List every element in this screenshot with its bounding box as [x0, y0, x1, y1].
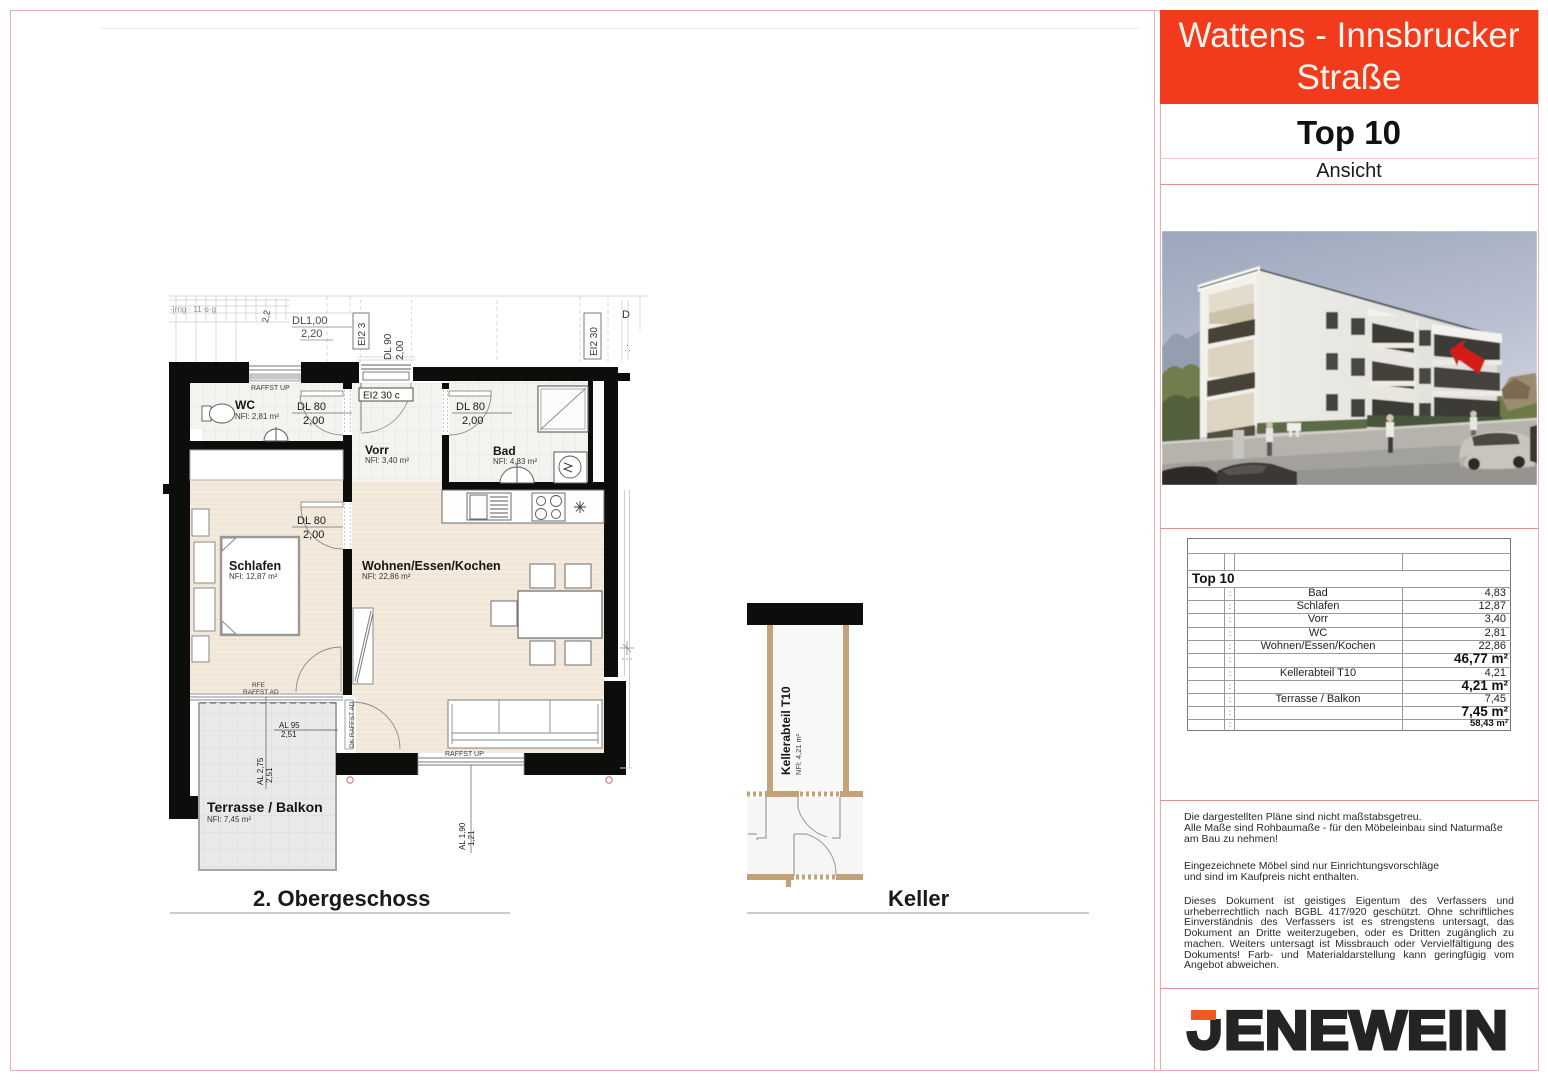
svg-text:NFl: 12,87 m²: NFl: 12,87 m²: [229, 572, 278, 581]
svg-text:DL1,00: DL1,00: [292, 315, 327, 327]
svg-text:RAFFST UP: RAFFST UP: [251, 385, 290, 392]
svg-text:: ·: : ·: [622, 344, 632, 352]
svg-text:2,00: 2,00: [303, 529, 324, 541]
svg-text:2. Obergeschoss: 2. Obergeschoss: [253, 886, 430, 911]
svg-text:DL 80: DL 80: [456, 401, 485, 413]
svg-text:1,21: 1,21: [467, 830, 476, 846]
svg-text:AL 2,75: AL 2,75: [256, 757, 265, 785]
svg-text:Terrasse / Balkon: Terrasse / Balkon: [207, 799, 323, 815]
svg-text:AL 1,90: AL 1,90: [458, 822, 467, 850]
svg-text:D: D: [622, 309, 630, 321]
svg-text:2,00: 2,00: [395, 340, 406, 360]
svg-text:2,00: 2,00: [303, 415, 324, 427]
svg-text:DL 90: DL 90: [383, 333, 394, 360]
svg-text:DK RAFFST AD: DK RAFFST AD: [349, 701, 356, 748]
svg-text:EI2 3: EI2 3: [357, 322, 368, 346]
svg-text:Bad: Bad: [493, 444, 516, 458]
svg-text:RFE: RFE: [252, 682, 266, 689]
svg-text:2,2: 2,2: [260, 309, 272, 323]
svg-text:Keller: Keller: [888, 886, 950, 911]
svg-text:Wohnen/Essen/Kochen: Wohnen/Essen/Kochen: [362, 559, 501, 573]
svg-text:DL 80: DL 80: [297, 401, 326, 413]
svg-text:NFl: 3,40 m²: NFl: 3,40 m²: [365, 456, 409, 465]
svg-text:·|rrig · 11·o·g: ·|rrig · 11·o·g: [170, 305, 216, 314]
svg-text:EI2 30 c: EI2 30 c: [363, 391, 400, 402]
svg-text:2,51: 2,51: [281, 730, 297, 739]
svg-text:Kellerabteil T10: Kellerabteil T10: [779, 686, 793, 775]
svg-text:WC: WC: [235, 398, 255, 412]
svg-text:DL 80: DL 80: [297, 515, 326, 527]
svg-text:Schlafen: Schlafen: [229, 559, 281, 573]
svg-text:2,20: 2,20: [301, 328, 322, 340]
svg-text:NFl: 2,81 m²: NFl: 2,81 m²: [235, 412, 279, 421]
svg-text:RAFFST UP: RAFFST UP: [445, 751, 484, 758]
svg-text:Vorr: Vorr: [365, 443, 389, 457]
svg-text:NFl: 4,21 m²: NFl: 4,21 m²: [794, 733, 803, 775]
svg-text:2,00: 2,00: [462, 415, 483, 427]
svg-text:NFl: 4,83 m²: NFl: 4,83 m²: [493, 457, 537, 466]
svg-text:NFl: 7,45 m²: NFl: 7,45 m²: [207, 815, 251, 824]
svg-text:RAFFST AD: RAFFST AD: [243, 689, 279, 696]
svg-text:NFl: 22,86 m²: NFl: 22,86 m²: [362, 572, 411, 581]
svg-text:ENEWEIN: ENEWEIN: [1224, 999, 1508, 1061]
svg-text:AL 95: AL 95: [279, 721, 300, 730]
svg-text:EI2 30: EI2 30: [589, 327, 600, 356]
